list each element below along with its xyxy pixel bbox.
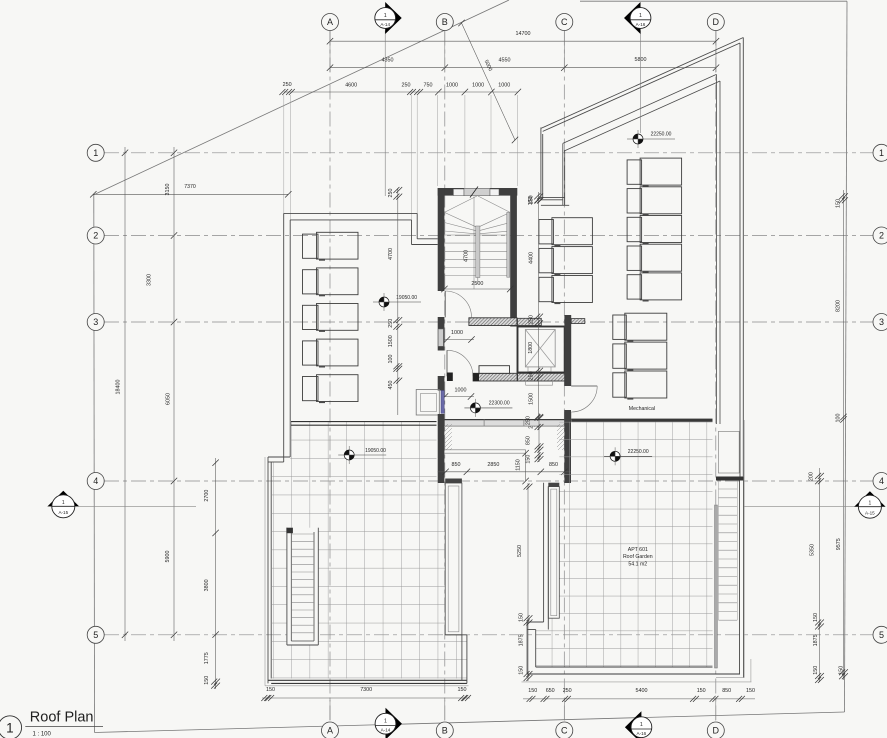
svg-text:150: 150	[836, 199, 842, 208]
svg-text:1875: 1875	[813, 634, 819, 646]
svg-text:A: A	[327, 17, 333, 27]
svg-text:APT 601: APT 601	[628, 547, 648, 553]
svg-text:1: 1	[93, 148, 98, 158]
svg-text:150: 150	[697, 688, 706, 694]
svg-text:A-16: A-16	[637, 731, 647, 736]
svg-text:2500: 2500	[471, 281, 483, 287]
svg-text:250: 250	[529, 315, 535, 324]
svg-text:250: 250	[283, 82, 292, 88]
svg-text:1: 1	[640, 722, 643, 728]
svg-text:100: 100	[836, 414, 842, 423]
svg-text:150: 150	[519, 613, 525, 622]
svg-text:4400: 4400	[529, 252, 535, 264]
svg-text:1500: 1500	[529, 393, 535, 405]
svg-text:5250: 5250	[517, 545, 523, 557]
svg-text:150: 150	[526, 455, 532, 464]
svg-text:9575: 9575	[836, 538, 842, 550]
svg-text:A-14: A-14	[381, 728, 391, 733]
svg-text:A-15: A-15	[58, 510, 68, 515]
svg-text:4: 4	[93, 476, 98, 486]
svg-text:150: 150	[746, 688, 755, 694]
svg-text:7370: 7370	[184, 184, 196, 190]
svg-text:1000: 1000	[455, 387, 467, 393]
svg-text:750: 750	[424, 83, 433, 89]
svg-text:22250.00: 22250.00	[628, 449, 649, 455]
svg-text:1000: 1000	[472, 83, 484, 89]
svg-text:650: 650	[546, 688, 555, 694]
svg-text:150: 150	[519, 666, 525, 675]
svg-text:5350: 5350	[810, 544, 816, 556]
svg-text:D: D	[713, 17, 720, 27]
svg-text:250: 250	[526, 416, 532, 425]
svg-text:8200: 8200	[836, 300, 842, 312]
svg-text:B: B	[442, 726, 448, 736]
svg-text:850: 850	[549, 462, 558, 468]
svg-text:150: 150	[813, 666, 819, 675]
svg-text:1000: 1000	[446, 83, 458, 89]
svg-text:A-16: A-16	[636, 22, 646, 27]
svg-text:18400: 18400	[116, 380, 122, 395]
svg-text:1: 1	[6, 720, 14, 735]
svg-text:250: 250	[388, 189, 394, 198]
svg-text:2700: 2700	[204, 490, 210, 502]
svg-text:850: 850	[526, 436, 532, 445]
svg-text:150: 150	[528, 688, 537, 694]
svg-text:1: 1	[879, 148, 884, 158]
svg-text:5900: 5900	[165, 551, 171, 563]
svg-text:850: 850	[722, 688, 731, 694]
svg-text:150: 150	[266, 687, 275, 693]
svg-text:1: 1	[639, 13, 642, 19]
svg-text:5: 5	[93, 630, 98, 640]
svg-text:22250.00: 22250.00	[651, 132, 672, 138]
svg-text:Mechanical: Mechanical	[629, 406, 655, 412]
svg-text:54.1 m2: 54.1 m2	[628, 561, 647, 567]
svg-text:1775: 1775	[204, 652, 210, 664]
svg-text:B: B	[442, 17, 448, 27]
svg-text:22300.00: 22300.00	[489, 401, 510, 407]
svg-text:3: 3	[93, 317, 98, 327]
svg-text:A-14: A-14	[380, 22, 390, 27]
svg-text:200: 200	[809, 472, 815, 481]
svg-text:2850: 2850	[487, 462, 499, 468]
svg-text:3150: 3150	[165, 184, 171, 196]
svg-text:1: 1	[62, 500, 65, 506]
svg-text:5400: 5400	[636, 688, 648, 694]
svg-text:Roof Garden: Roof Garden	[623, 554, 653, 560]
svg-text:1: 1	[384, 719, 387, 725]
svg-text:3300: 3300	[147, 274, 153, 286]
svg-text:1150: 1150	[516, 459, 522, 471]
svg-text:A: A	[327, 726, 333, 736]
svg-text:450: 450	[388, 381, 394, 390]
svg-text:150: 150	[839, 666, 845, 675]
svg-text:7300: 7300	[360, 687, 372, 693]
svg-text:150: 150	[813, 613, 819, 622]
svg-text:C: C	[561, 726, 568, 736]
svg-text:3: 3	[879, 317, 884, 327]
svg-text:1000: 1000	[498, 83, 510, 89]
svg-text:D: D	[713, 726, 720, 736]
svg-text:1: 1	[869, 501, 872, 507]
svg-text:250: 250	[402, 83, 411, 89]
svg-text:4: 4	[879, 476, 884, 486]
svg-text:Roof Plan: Roof Plan	[30, 710, 94, 726]
svg-text:3800: 3800	[204, 579, 210, 591]
svg-text:4550: 4550	[499, 58, 511, 64]
svg-text:4700: 4700	[388, 248, 394, 260]
svg-text:5: 5	[879, 630, 884, 640]
svg-text:6050: 6050	[166, 393, 172, 405]
svg-text:4700: 4700	[464, 250, 470, 262]
svg-text:1 : 100: 1 : 100	[33, 732, 52, 738]
svg-text:250: 250	[529, 371, 535, 380]
svg-text:A-15: A-15	[865, 510, 875, 515]
svg-text:19050.00: 19050.00	[396, 295, 417, 301]
svg-text:1875: 1875	[519, 634, 525, 646]
svg-text:4600: 4600	[345, 83, 357, 89]
svg-text:2: 2	[879, 231, 884, 241]
svg-text:850: 850	[452, 462, 461, 468]
svg-text:1500: 1500	[388, 335, 394, 347]
svg-text:150: 150	[458, 687, 467, 693]
svg-text:C: C	[561, 17, 568, 27]
svg-text:4350: 4350	[382, 58, 394, 64]
svg-text:250: 250	[388, 319, 394, 328]
svg-text:150: 150	[204, 676, 210, 685]
svg-text:14700: 14700	[516, 31, 531, 37]
svg-text:1000: 1000	[451, 330, 463, 336]
svg-text:150: 150	[529, 195, 535, 204]
svg-text:19050.00: 19050.00	[365, 448, 386, 454]
svg-text:250: 250	[563, 688, 572, 694]
svg-text:100: 100	[388, 355, 394, 364]
svg-text:2: 2	[93, 231, 98, 241]
svg-text:1: 1	[384, 13, 387, 19]
svg-text:1800: 1800	[528, 342, 534, 354]
